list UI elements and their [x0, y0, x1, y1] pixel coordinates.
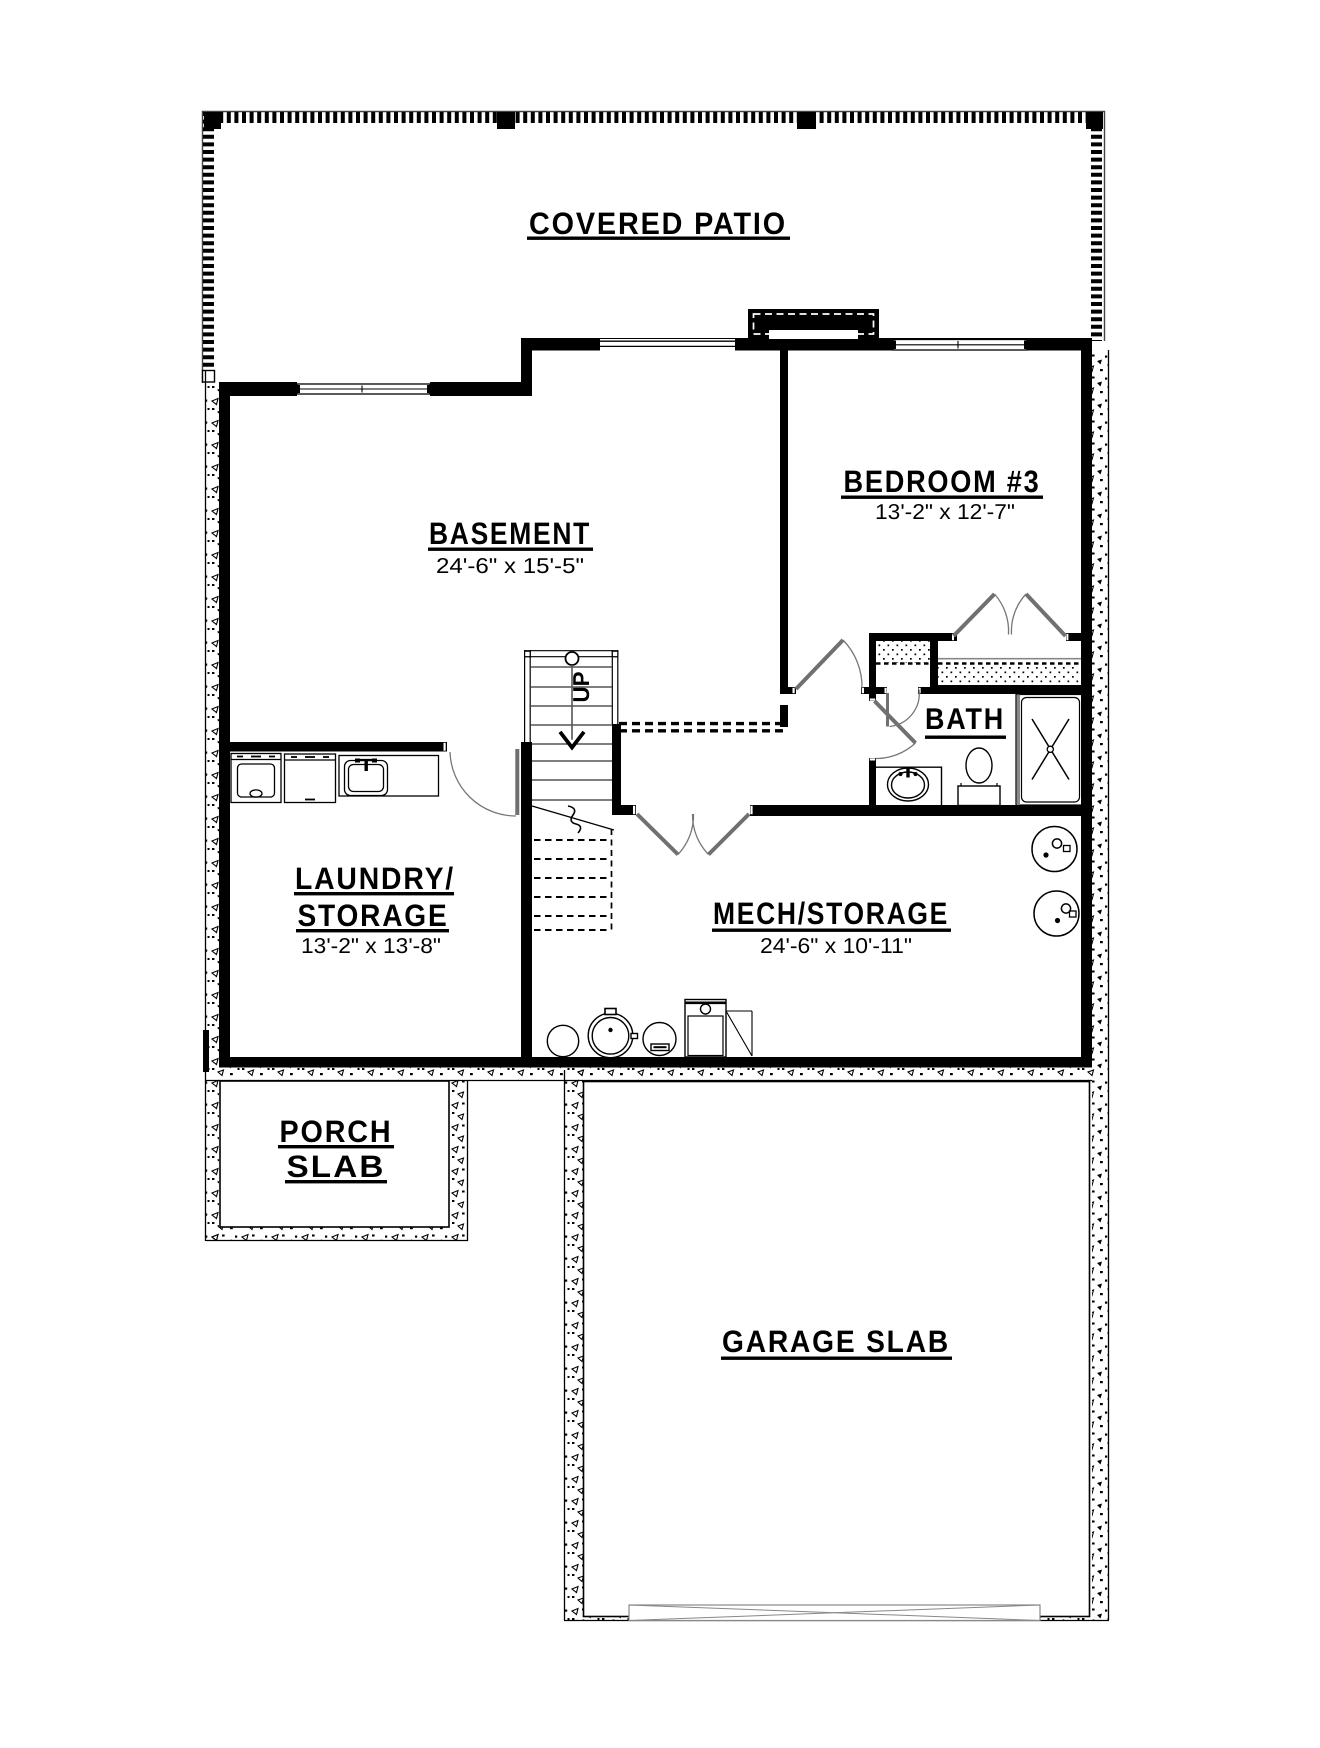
svg-text:LAUNDRY/: LAUNDRY/	[295, 861, 455, 896]
svg-text:UP: UP	[568, 672, 594, 703]
svg-text:GARAGE SLAB: GARAGE SLAB	[722, 1324, 950, 1359]
svg-text:PORCH: PORCH	[280, 1114, 393, 1149]
svg-text:STORAGE: STORAGE	[298, 898, 449, 933]
svg-text:BASEMENT: BASEMENT	[429, 516, 591, 551]
svg-text:SLAB: SLAB	[287, 1149, 386, 1184]
svg-text:24'-6" x 15'-5": 24'-6" x 15'-5"	[436, 554, 584, 578]
svg-text:BEDROOM #3: BEDROOM #3	[844, 464, 1041, 499]
svg-text:24'-6" x 10'-11": 24'-6" x 10'-11"	[760, 934, 912, 958]
svg-text:MECH/STORAGE: MECH/STORAGE	[713, 896, 949, 931]
svg-text:COVERED PATIO: COVERED PATIO	[529, 206, 787, 241]
svg-text:13'-2" x 13'-8": 13'-2" x 13'-8"	[301, 934, 441, 958]
svg-text:BATH: BATH	[925, 703, 1005, 736]
svg-text:13'-2" x 12'-7": 13'-2" x 12'-7"	[875, 500, 1015, 524]
